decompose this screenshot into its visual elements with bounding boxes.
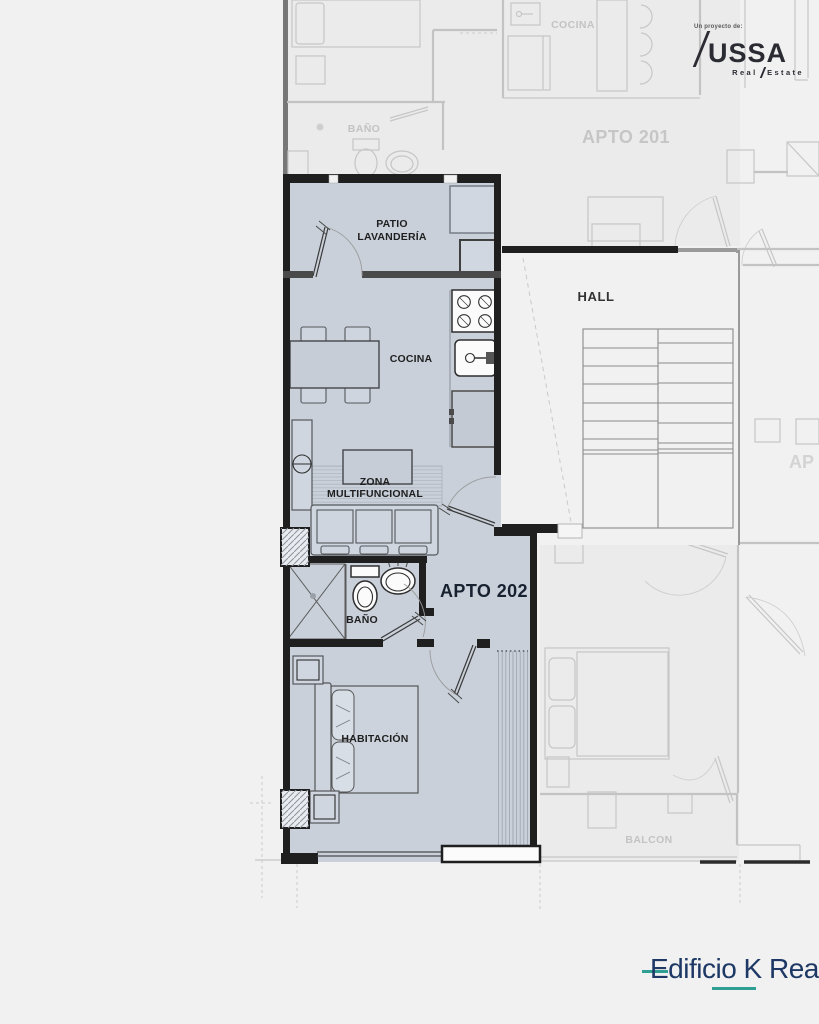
fridge-icon bbox=[449, 391, 497, 447]
building-name: Edificio K Real bbox=[650, 953, 819, 985]
washer-icon bbox=[450, 186, 495, 233]
headboard bbox=[315, 683, 331, 797]
shower-drain-faded bbox=[317, 124, 324, 131]
unit-title: APTO 202 bbox=[440, 581, 528, 601]
logo-underline-accent bbox=[712, 987, 756, 990]
ussa-tagline-estate: Estate bbox=[767, 68, 804, 77]
wall bbox=[417, 639, 434, 647]
label-bano: BAÑO bbox=[346, 613, 378, 626]
label-balcon: BALCON bbox=[625, 834, 672, 846]
ussa-tagline-slash-icon bbox=[759, 67, 765, 78]
label-zona-line2: MULTIFUNCIONAL bbox=[327, 488, 423, 500]
building-logo: Edificio K Real bbox=[642, 951, 817, 997]
presented-by-text: Un proyecto de: bbox=[694, 24, 806, 30]
sofa bbox=[311, 505, 438, 555]
floor-plan-page: COCINA BAÑO APTO 201 AP bbox=[0, 0, 819, 1024]
shelf-unit bbox=[292, 420, 312, 510]
floor-plan-svg: COCINA BAÑO APTO 201 AP bbox=[0, 0, 819, 1024]
window-sill bbox=[442, 846, 540, 862]
wall bbox=[477, 639, 490, 648]
wall bbox=[419, 608, 434, 616]
stove-icon bbox=[452, 290, 496, 332]
sofa-cushion bbox=[317, 510, 353, 543]
label-cocina: COCINA bbox=[390, 353, 433, 365]
neighbor-unit-fill bbox=[540, 545, 739, 860]
sofa-cushion bbox=[395, 510, 431, 543]
wall bbox=[283, 639, 383, 647]
kitchen-sink-icon bbox=[455, 340, 496, 376]
closet bbox=[497, 651, 528, 846]
hall: HALL bbox=[502, 246, 738, 545]
toilet-icon bbox=[351, 566, 379, 611]
ussa-logo: Un proyecto de: USSA Real Estate bbox=[688, 24, 806, 78]
label-apto201: APTO 201 bbox=[582, 127, 670, 147]
shower-drain bbox=[310, 593, 316, 599]
wall bbox=[283, 271, 313, 278]
label-zona-line1: ZONA bbox=[360, 476, 391, 488]
wall bbox=[281, 853, 318, 864]
label-habitacion: HABITACIÓN bbox=[341, 732, 408, 745]
label-patio-line2: LAVANDERÍA bbox=[357, 230, 426, 243]
apto201-living-fill bbox=[502, 176, 740, 246]
label-patio-line1: PATIO bbox=[376, 218, 408, 230]
label-hall: HALL bbox=[577, 289, 614, 304]
ussa-tagline-real: Real bbox=[732, 68, 757, 77]
label-apto-partial: AP bbox=[789, 452, 814, 472]
wall bbox=[494, 176, 501, 475]
wall bbox=[362, 271, 501, 278]
dining-table bbox=[290, 341, 379, 388]
sofa-cushion bbox=[356, 510, 392, 543]
nightstand bbox=[310, 791, 339, 823]
nightstand bbox=[293, 656, 323, 684]
wall bbox=[283, 174, 501, 183]
label-apto201-cocina: COCINA bbox=[551, 19, 595, 31]
wall bbox=[419, 556, 426, 614]
laundry-sink-icon bbox=[460, 240, 495, 273]
ussa-brand-name: USSA bbox=[708, 41, 787, 67]
apto201-area-fill bbox=[283, 0, 740, 176]
pillow bbox=[332, 742, 354, 792]
label-apto201-bano: BAÑO bbox=[348, 122, 381, 135]
wall bbox=[530, 530, 537, 862]
